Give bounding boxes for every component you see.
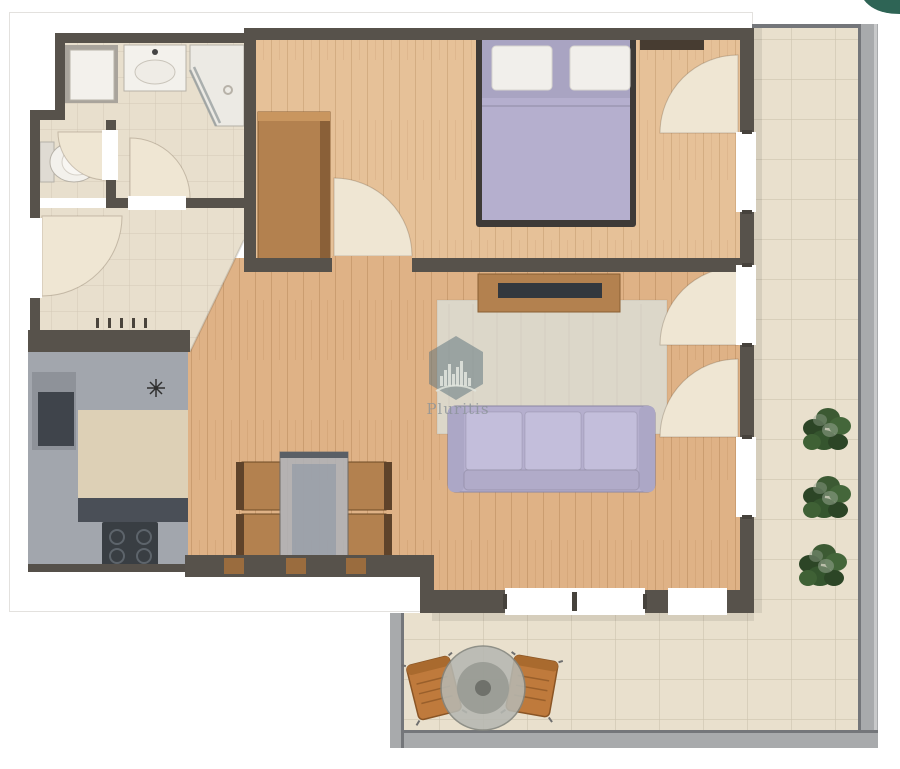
pillow bbox=[570, 46, 630, 90]
railing-line bbox=[874, 24, 877, 748]
window-frame bbox=[224, 558, 244, 574]
window-frame bbox=[346, 558, 366, 574]
chair-back bbox=[236, 514, 244, 560]
double-bed bbox=[476, 33, 636, 227]
sofa-back bbox=[464, 470, 639, 490]
chair-back bbox=[236, 462, 244, 510]
door-jamb bbox=[742, 435, 752, 439]
wardrobe-side bbox=[320, 112, 330, 264]
dining-table-inner bbox=[292, 464, 336, 564]
terrace-floor bbox=[752, 24, 858, 613]
sofa-armrest bbox=[448, 406, 464, 492]
bedroom-door-opening bbox=[332, 256, 412, 274]
wall bbox=[28, 330, 190, 352]
wall bbox=[185, 555, 432, 577]
terrace-door-opening bbox=[736, 437, 756, 517]
oven bbox=[38, 392, 74, 446]
washing-machine bbox=[70, 50, 114, 100]
railing-line bbox=[390, 730, 878, 733]
dining-chair bbox=[242, 514, 280, 560]
wall bbox=[244, 28, 256, 272]
window-frame bbox=[286, 558, 306, 574]
floor-plan-rendering: Pluritis bbox=[0, 0, 900, 769]
tv bbox=[498, 283, 602, 298]
sofa-armrest bbox=[639, 406, 655, 492]
door-jamb bbox=[643, 594, 647, 609]
wall bbox=[420, 555, 434, 613]
sofa-cushion bbox=[525, 412, 581, 470]
floor-plan-page: Pluritis bbox=[0, 0, 900, 769]
door-jamb bbox=[503, 594, 507, 609]
pillow bbox=[492, 46, 552, 90]
wall bbox=[244, 28, 754, 40]
balcony-door-opening bbox=[668, 588, 727, 615]
door-jamb bbox=[742, 130, 752, 134]
kitchen-counter-dark bbox=[78, 498, 188, 522]
door-jamb bbox=[742, 263, 752, 267]
wardrobe-top bbox=[258, 112, 330, 121]
chair-back bbox=[384, 462, 392, 510]
sofa-cushion bbox=[584, 412, 637, 470]
sofa bbox=[448, 406, 655, 492]
sink-basin bbox=[135, 60, 175, 84]
wall bbox=[55, 33, 65, 120]
wardrobe bbox=[258, 112, 330, 264]
entry-door-opening bbox=[26, 218, 42, 298]
wall bbox=[30, 110, 40, 210]
watermark-text: Pluritis bbox=[426, 400, 489, 418]
kitchen bbox=[28, 352, 188, 572]
bathroom-door-opening bbox=[128, 196, 186, 210]
kitchen-worktop bbox=[78, 410, 188, 498]
corner-badge-icon bbox=[864, 0, 900, 14]
chair-back bbox=[384, 514, 392, 560]
sink-faucet-icon bbox=[152, 49, 158, 55]
dining-chair bbox=[242, 462, 280, 510]
door-jamb bbox=[742, 210, 752, 214]
sofa-cushion bbox=[466, 412, 522, 470]
wall bbox=[55, 33, 252, 43]
railing-line bbox=[858, 24, 861, 748]
wc-door-opening bbox=[102, 130, 118, 180]
railing-line bbox=[401, 613, 404, 748]
wall bbox=[256, 258, 754, 272]
terrace-door-opening bbox=[736, 265, 756, 345]
patio-table-center bbox=[475, 680, 491, 696]
dining-chair bbox=[348, 462, 386, 510]
door-jamb bbox=[742, 343, 752, 347]
table-frame bbox=[280, 452, 348, 458]
door-jamb bbox=[742, 515, 752, 519]
door-mullion bbox=[572, 592, 577, 611]
kitchen-bottom-edge bbox=[28, 564, 188, 572]
dining-chair bbox=[348, 514, 386, 560]
terrace-door-opening bbox=[736, 132, 756, 212]
